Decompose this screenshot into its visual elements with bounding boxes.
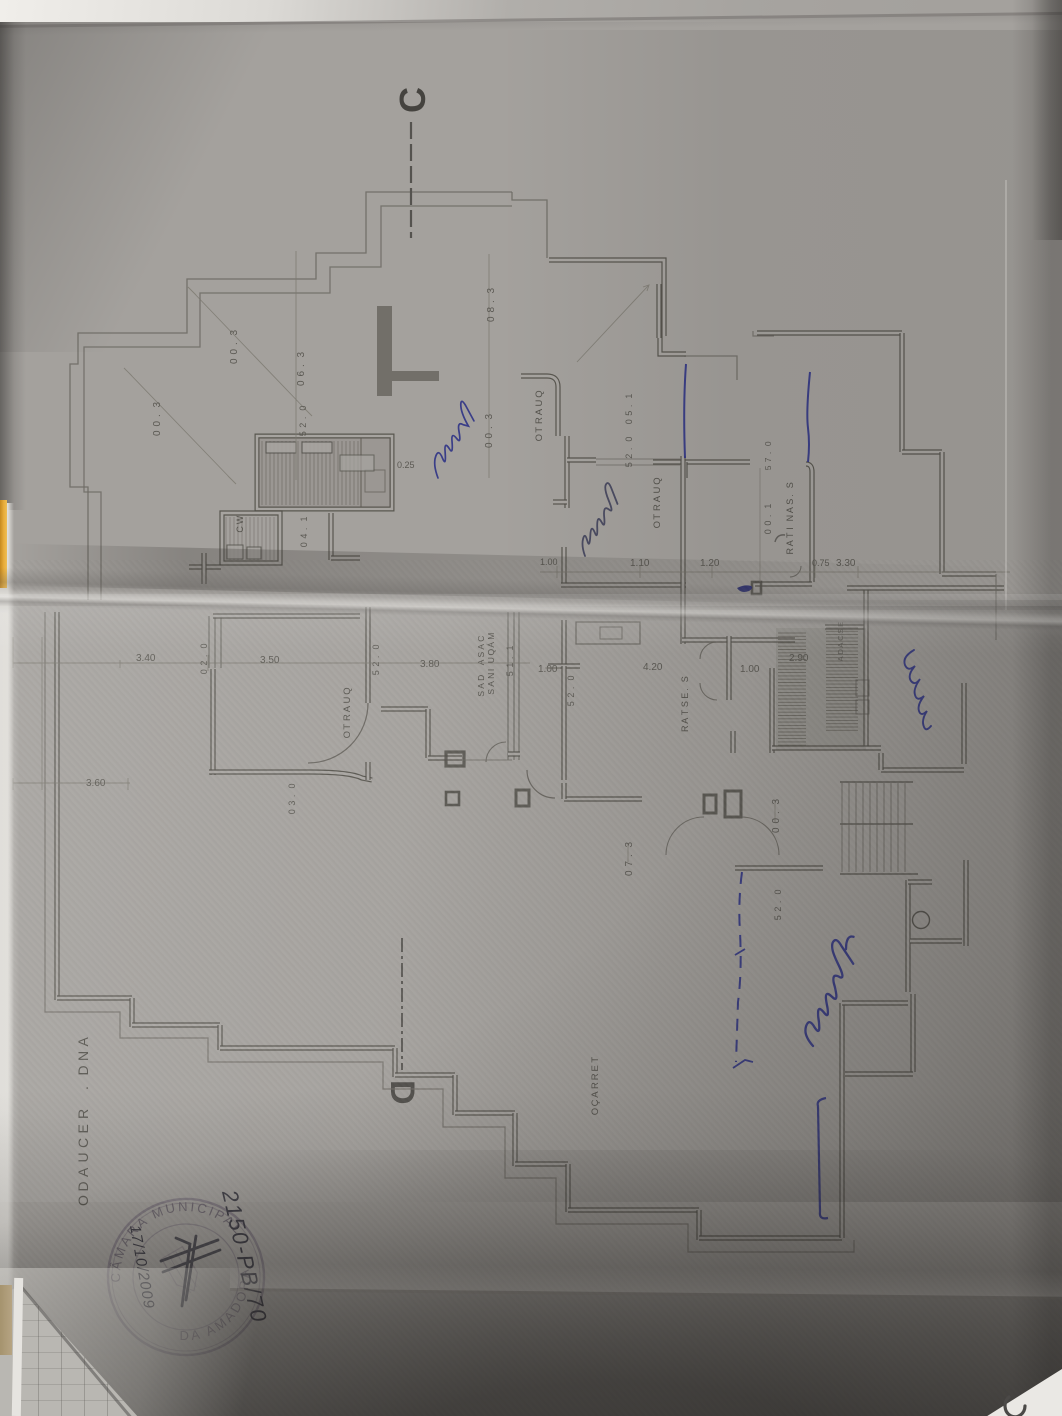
svg-text:5: 5 — [298, 431, 308, 436]
svg-text:0: 0 — [299, 542, 309, 547]
svg-text:0.25: 0.25 — [397, 460, 415, 470]
svg-text:.: . — [299, 528, 309, 531]
svg-text:.: . — [152, 414, 163, 417]
svg-text:0: 0 — [484, 442, 495, 448]
svg-text:3: 3 — [484, 414, 495, 420]
svg-text:6: 6 — [296, 371, 307, 377]
svg-text:0: 0 — [229, 358, 240, 364]
svg-text:.: . — [484, 426, 495, 429]
svg-text:8: 8 — [486, 307, 497, 313]
svg-text:4: 4 — [299, 534, 309, 539]
svg-text:1: 1 — [299, 516, 309, 521]
svg-text:0: 0 — [486, 316, 497, 322]
svg-text:0: 0 — [152, 421, 163, 427]
svg-text:.: . — [296, 364, 307, 367]
svg-text:.: . — [298, 417, 308, 420]
svg-text:.: . — [486, 300, 497, 303]
svg-text:3: 3 — [152, 402, 163, 408]
svg-text:0: 0 — [298, 406, 308, 411]
svg-text:3: 3 — [296, 352, 307, 358]
svg-text:0: 0 — [152, 430, 163, 436]
svg-text:W: W — [235, 515, 245, 525]
svg-text:3: 3 — [486, 288, 497, 294]
svg-text:0: 0 — [484, 433, 495, 439]
svg-text:2: 2 — [298, 423, 308, 428]
svg-text:C: C — [235, 525, 245, 533]
svg-text:0: 0 — [296, 380, 307, 386]
